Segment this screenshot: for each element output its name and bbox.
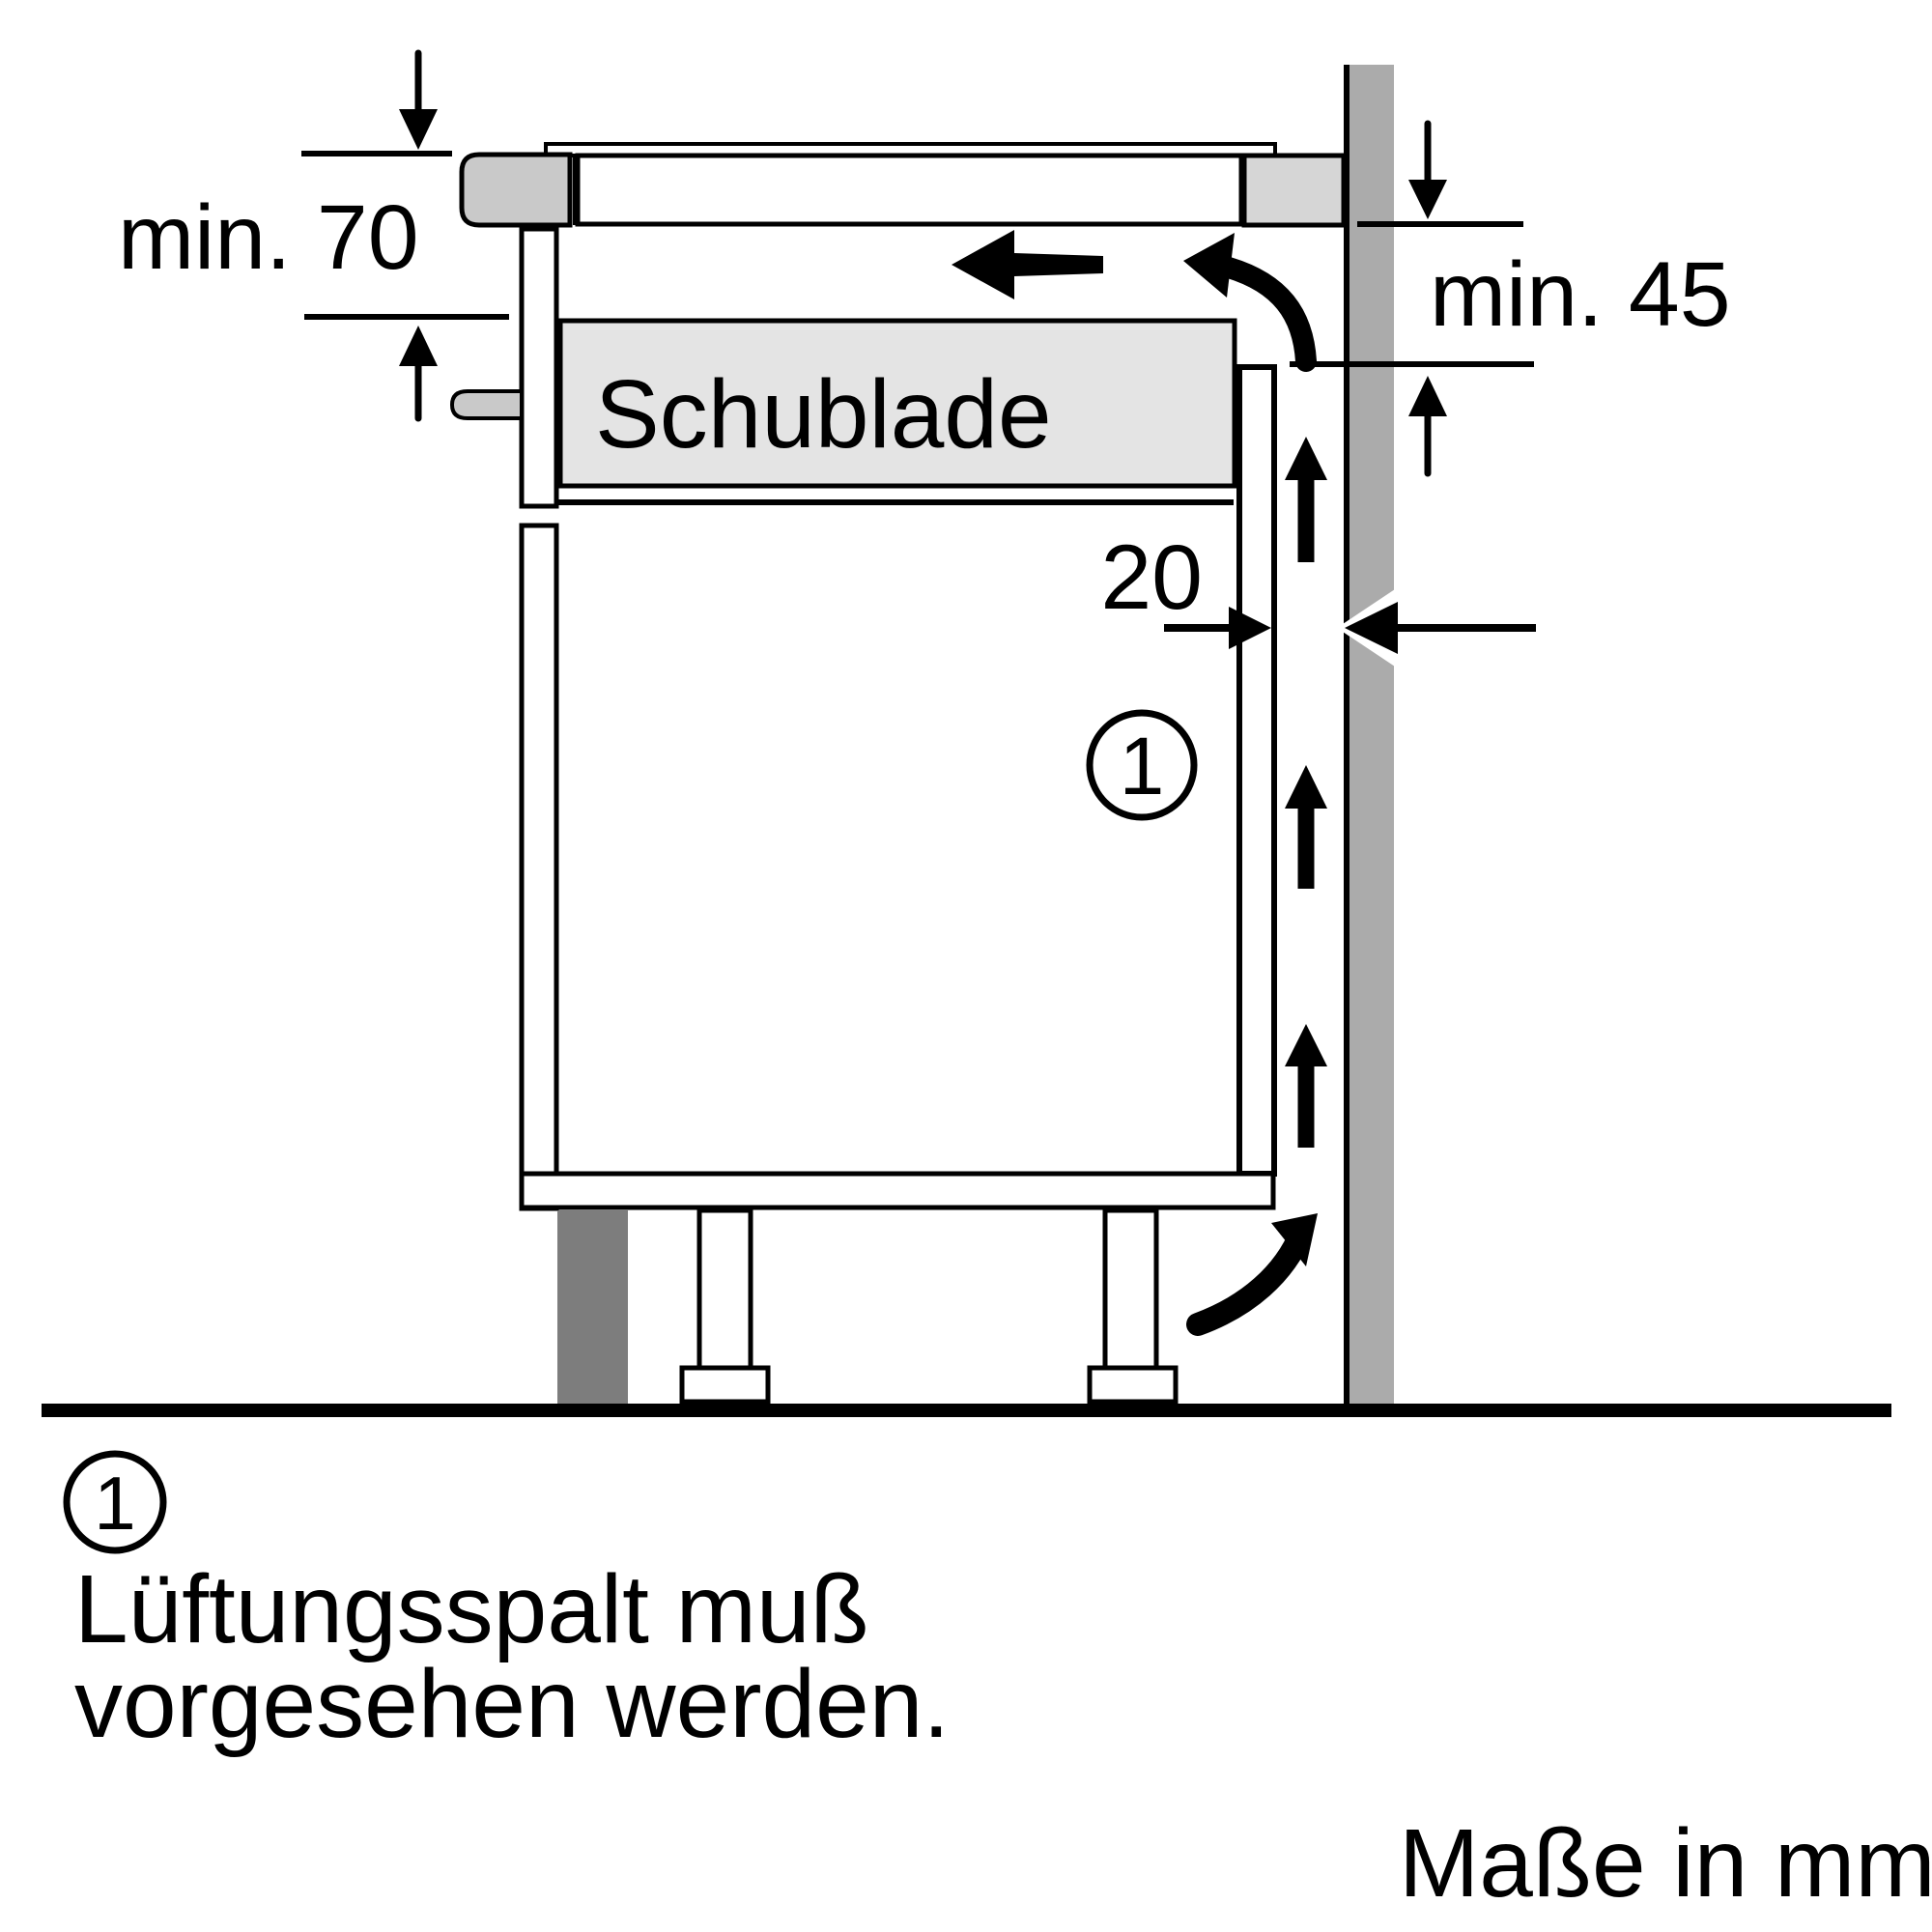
- label-min-45: min. 45: [1430, 243, 1731, 346]
- diagram-canvas: Schublade: [0, 0, 1932, 1932]
- worktop-front-edge: [462, 155, 570, 225]
- front-leg-foot: [682, 1368, 768, 1402]
- rear-leg-stem: [1105, 1210, 1156, 1368]
- floor-line: [42, 1404, 1891, 1417]
- dim-line-vent-top: [1290, 361, 1534, 367]
- note-line-1: Lüftungsspalt muß: [74, 1555, 869, 1663]
- cabinet-front-panel-lower: [522, 526, 556, 1208]
- drawer-rail-line: [558, 499, 1234, 505]
- airflow-up-shaft-3: [1298, 1063, 1315, 1148]
- callout-number: 1: [1120, 721, 1165, 811]
- airflow-up-shaft-1: [1298, 476, 1315, 562]
- dim-line-worktop-bottom: [1357, 221, 1523, 227]
- units-note: Maße in mm: [1399, 1809, 1932, 1918]
- plinth-foot-block: [557, 1210, 628, 1404]
- rear-leg-foot: [1090, 1368, 1176, 1402]
- legend-number: 1: [94, 1461, 135, 1546]
- callout-1-legend: 1: [67, 1454, 163, 1550]
- drawer-label: Schublade: [595, 360, 1052, 469]
- gap-arrow-left-shaft: [1396, 624, 1536, 632]
- front-leg-stem: [699, 1210, 751, 1368]
- callout-1-diagram: 1: [1090, 713, 1194, 817]
- label-min-70: min. 70: [118, 186, 419, 289]
- wall: [1350, 65, 1394, 1404]
- wall-edge-line: [1344, 65, 1350, 1404]
- cabinet-back-vent-board: [1239, 367, 1274, 1174]
- cabinet-bottom-panel: [522, 1174, 1273, 1207]
- dim-line-drawer-top: [304, 314, 509, 320]
- worktop-rear-section: [1244, 156, 1344, 225]
- airflow-up-shaft-2: [1298, 805, 1315, 889]
- drawer-handle: [452, 391, 522, 418]
- note-line-2: vorgesehen werden.: [74, 1650, 950, 1758]
- cabinet-front-panel-upper: [522, 229, 556, 506]
- label-gap-20: 20: [1100, 526, 1203, 629]
- hob-body: [578, 156, 1241, 224]
- installation-diagram: Schublade: [0, 0, 1932, 1932]
- dim-line-hob-top: [301, 151, 452, 156]
- worktop-hob-group: [462, 144, 1344, 225]
